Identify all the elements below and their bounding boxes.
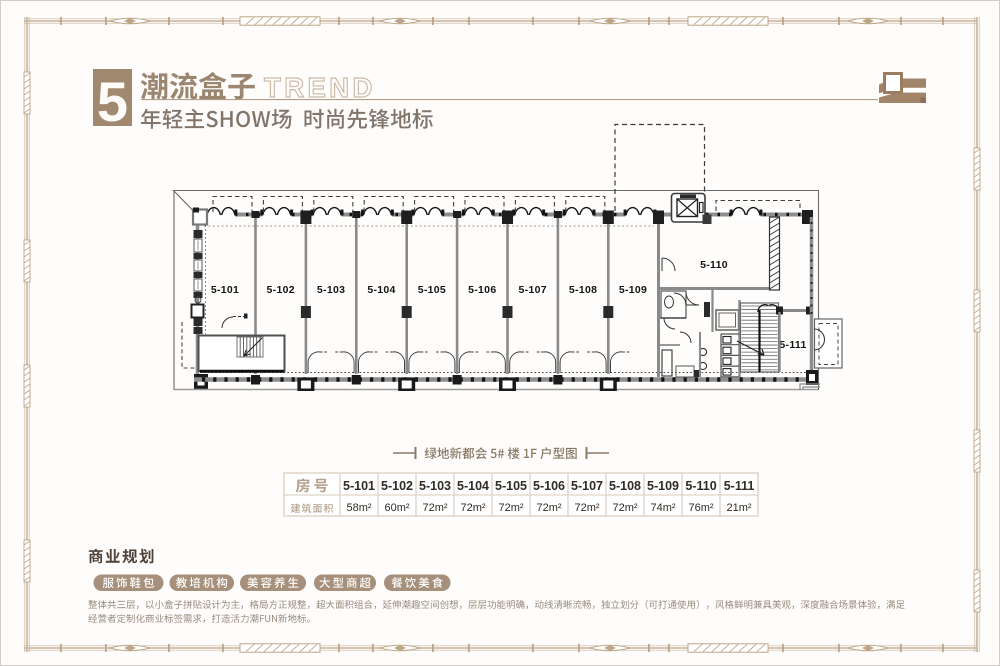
svg-text:72m²: 72m²: [536, 502, 561, 514]
svg-text:74m²: 74m²: [650, 502, 675, 514]
svg-text:5-104: 5-104: [457, 479, 489, 493]
svg-text:21m²: 21m²: [726, 502, 751, 514]
svg-text:5-105: 5-105: [418, 284, 446, 296]
svg-text:5-107: 5-107: [571, 479, 603, 493]
svg-text:5-106: 5-106: [468, 284, 496, 296]
svg-text:60m²: 60m²: [384, 502, 409, 514]
svg-text:76m²: 76m²: [688, 502, 713, 514]
svg-text:58m²: 58m²: [346, 502, 371, 514]
svg-text:5-110: 5-110: [700, 259, 728, 271]
svg-text:5-108: 5-108: [609, 479, 641, 493]
svg-text:5-102: 5-102: [381, 479, 413, 493]
svg-text:5-111: 5-111: [724, 479, 755, 493]
svg-text:72m²: 72m²: [460, 502, 485, 514]
svg-text:72m²: 72m²: [612, 502, 637, 514]
svg-text:72m²: 72m²: [498, 502, 523, 514]
svg-text:TREND: TREND: [264, 72, 376, 103]
svg-text:5-102: 5-102: [267, 284, 295, 296]
svg-text:5-101: 5-101: [343, 479, 375, 493]
svg-text:5-106: 5-106: [533, 479, 565, 493]
svg-text:5-109: 5-109: [619, 284, 647, 296]
svg-text:5-109: 5-109: [647, 479, 679, 493]
svg-text:5-103: 5-103: [419, 479, 451, 493]
svg-text:5-105: 5-105: [495, 479, 527, 493]
svg-text:5-110: 5-110: [685, 479, 716, 493]
svg-text:5-111: 5-111: [779, 339, 806, 351]
svg-text:5: 5: [97, 70, 128, 133]
svg-text:72m²: 72m²: [422, 502, 447, 514]
svg-text:72m²: 72m²: [574, 502, 599, 514]
svg-text:5-104: 5-104: [367, 284, 395, 296]
svg-text:5-103: 5-103: [317, 284, 345, 296]
svg-text:5-107: 5-107: [519, 284, 547, 296]
svg-text:5-101: 5-101: [211, 284, 239, 296]
svg-text:5-108: 5-108: [569, 284, 597, 296]
